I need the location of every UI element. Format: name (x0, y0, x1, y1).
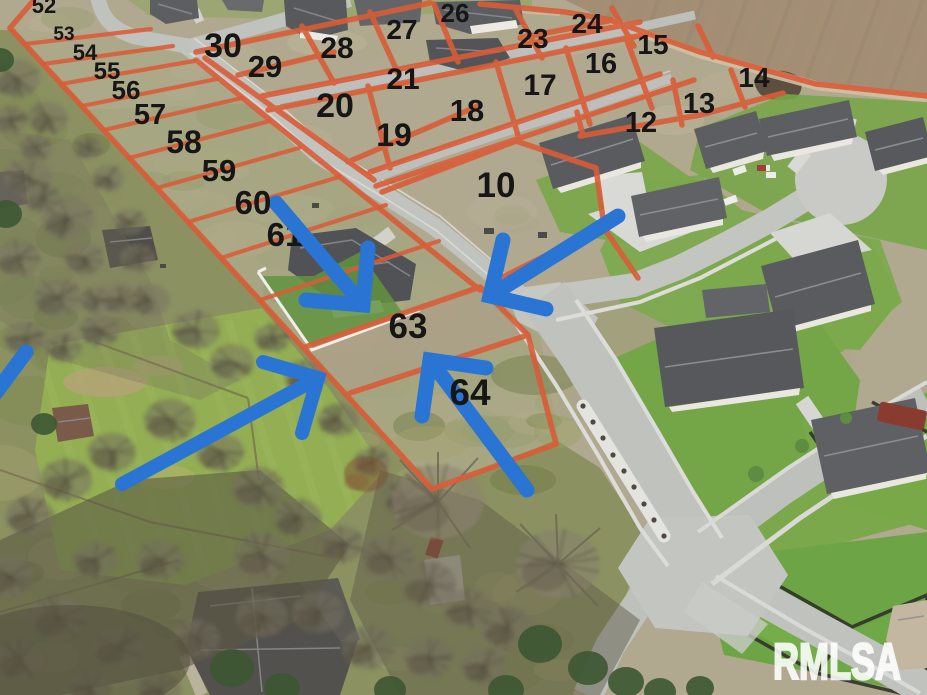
svg-text:64: 64 (449, 372, 491, 413)
svg-text:19: 19 (376, 117, 412, 153)
svg-text:63: 63 (389, 307, 428, 346)
svg-text:21: 21 (386, 63, 419, 96)
svg-text:10: 10 (477, 166, 516, 205)
svg-text:30: 30 (204, 27, 242, 65)
svg-text:14: 14 (738, 62, 770, 93)
svg-text:53: 53 (53, 24, 74, 45)
svg-text:24: 24 (571, 8, 603, 39)
svg-text:13: 13 (683, 88, 715, 120)
svg-text:15: 15 (637, 29, 668, 60)
svg-text:28: 28 (320, 32, 353, 65)
svg-text:12: 12 (625, 107, 657, 139)
svg-text:52: 52 (32, 0, 56, 18)
svg-text:29: 29 (248, 49, 282, 84)
svg-text:23: 23 (517, 23, 548, 54)
svg-text:27: 27 (386, 14, 417, 45)
svg-text:58: 58 (166, 124, 202, 160)
svg-text:57: 57 (134, 99, 166, 131)
svg-text:18: 18 (450, 93, 484, 128)
svg-text:20: 20 (316, 87, 354, 125)
svg-text:17: 17 (523, 69, 556, 102)
svg-text:16: 16 (585, 48, 617, 80)
svg-text:60: 60 (235, 184, 272, 221)
svg-text:26: 26 (441, 0, 470, 28)
svg-text:RMLSA: RMLSA (773, 633, 901, 690)
svg-text:59: 59 (202, 153, 236, 188)
